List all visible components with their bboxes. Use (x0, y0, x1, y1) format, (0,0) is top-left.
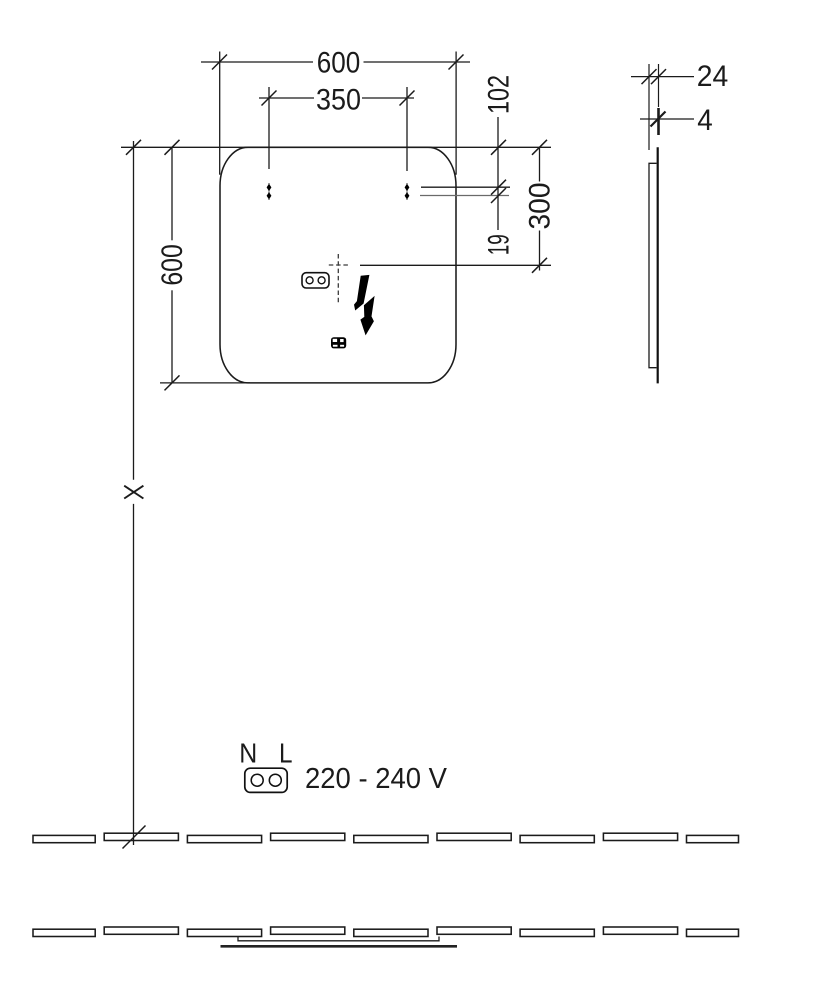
svg-text:600: 600 (317, 46, 361, 79)
svg-text:350: 350 (316, 83, 361, 116)
svg-text:300: 300 (523, 183, 556, 230)
svg-text:600: 600 (156, 244, 189, 286)
svg-text:24: 24 (697, 60, 729, 93)
svg-text:N: N (239, 738, 257, 769)
svg-text:L: L (279, 738, 293, 769)
svg-text:102: 102 (483, 75, 516, 114)
svg-text:220 - 240 V: 220 - 240 V (305, 763, 447, 795)
svg-text:19: 19 (483, 234, 516, 255)
svg-text:4: 4 (697, 104, 713, 137)
